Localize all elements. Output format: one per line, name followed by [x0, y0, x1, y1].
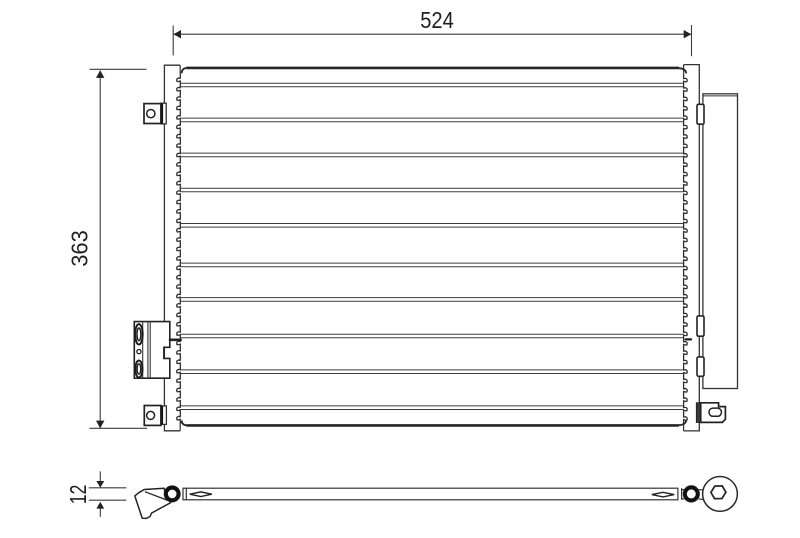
- svg-text:12: 12: [65, 485, 91, 505]
- svg-text:524: 524: [420, 7, 454, 33]
- svg-text:363: 363: [66, 230, 92, 267]
